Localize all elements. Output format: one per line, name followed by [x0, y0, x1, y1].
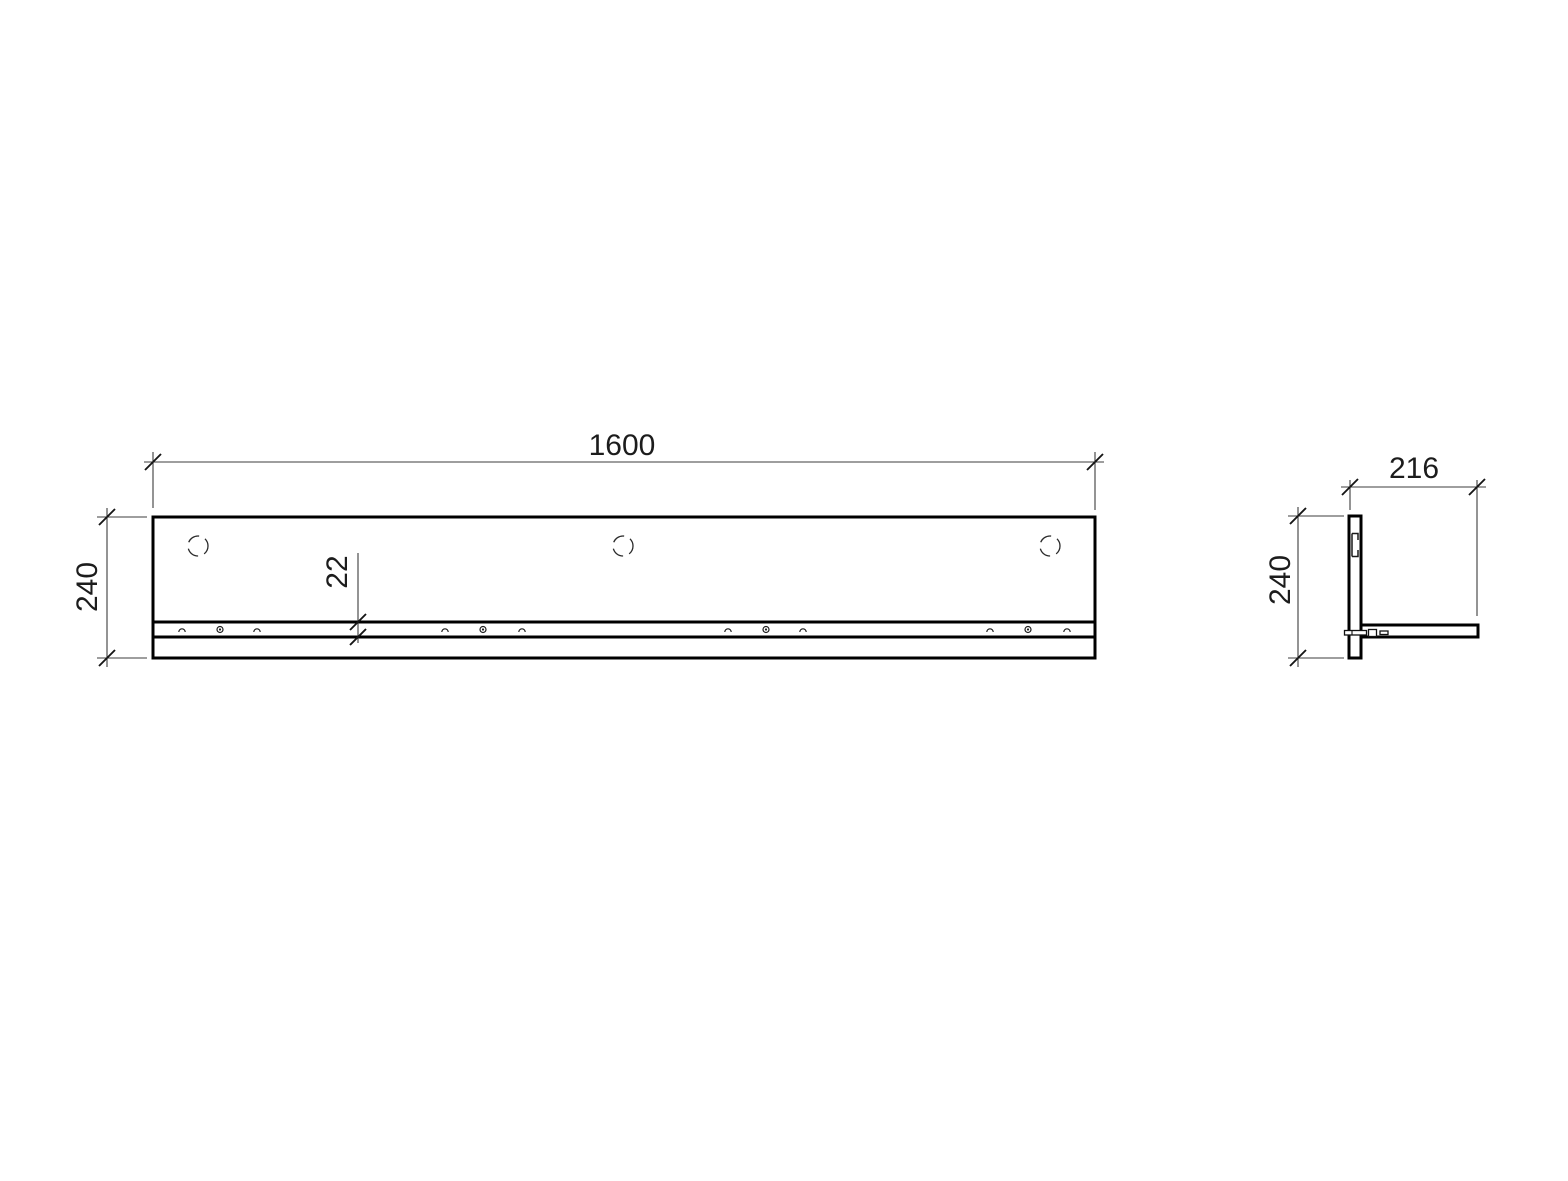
cam-housing-mark [1369, 630, 1377, 637]
dim-label: 240 [71, 562, 104, 612]
shelf-board-section [1360, 625, 1478, 637]
cam-center [219, 628, 221, 630]
cam-center [765, 628, 767, 630]
dim-front-width: 1600 [144, 429, 1104, 510]
dim-front-height: 240 [71, 508, 147, 667]
back-rail-section [1349, 516, 1361, 658]
dim-label: 240 [1264, 555, 1297, 605]
dowel-mark [1380, 631, 1388, 635]
dim-label: 22 [321, 555, 354, 588]
drawing-sheet: 1600 240 22 216 240 [0, 0, 1568, 1176]
cam-center [1027, 628, 1029, 630]
bolt-shaft-mark [1345, 631, 1367, 636]
dim-label: 216 [1389, 452, 1439, 485]
dim-side-height: 240 [1264, 507, 1344, 667]
side-view [1345, 516, 1479, 658]
dim-side-depth: 216 [1341, 452, 1486, 616]
cam-center [482, 628, 484, 630]
front-view [153, 517, 1095, 658]
technical-drawing: 1600 240 22 216 240 [0, 0, 1568, 1176]
dim-label: 1600 [589, 429, 656, 462]
